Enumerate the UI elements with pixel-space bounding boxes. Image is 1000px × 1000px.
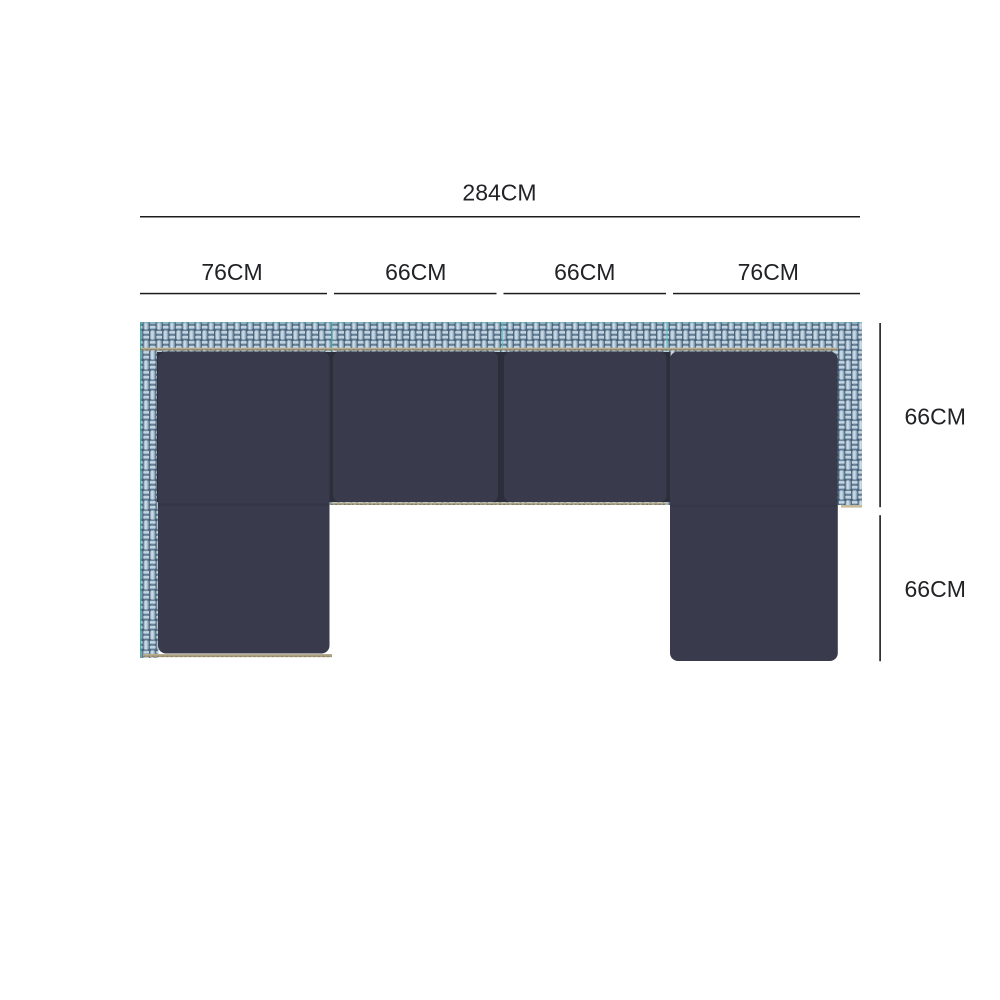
svg-text:66CM: 66CM <box>905 576 966 602</box>
svg-text:66CM: 66CM <box>554 259 615 285</box>
svg-text:76CM: 76CM <box>201 259 262 285</box>
svg-text:284CM: 284CM <box>462 180 536 206</box>
svg-text:66CM: 66CM <box>905 404 966 430</box>
svg-text:76CM: 76CM <box>738 259 799 285</box>
svg-text:66CM: 66CM <box>385 259 446 285</box>
